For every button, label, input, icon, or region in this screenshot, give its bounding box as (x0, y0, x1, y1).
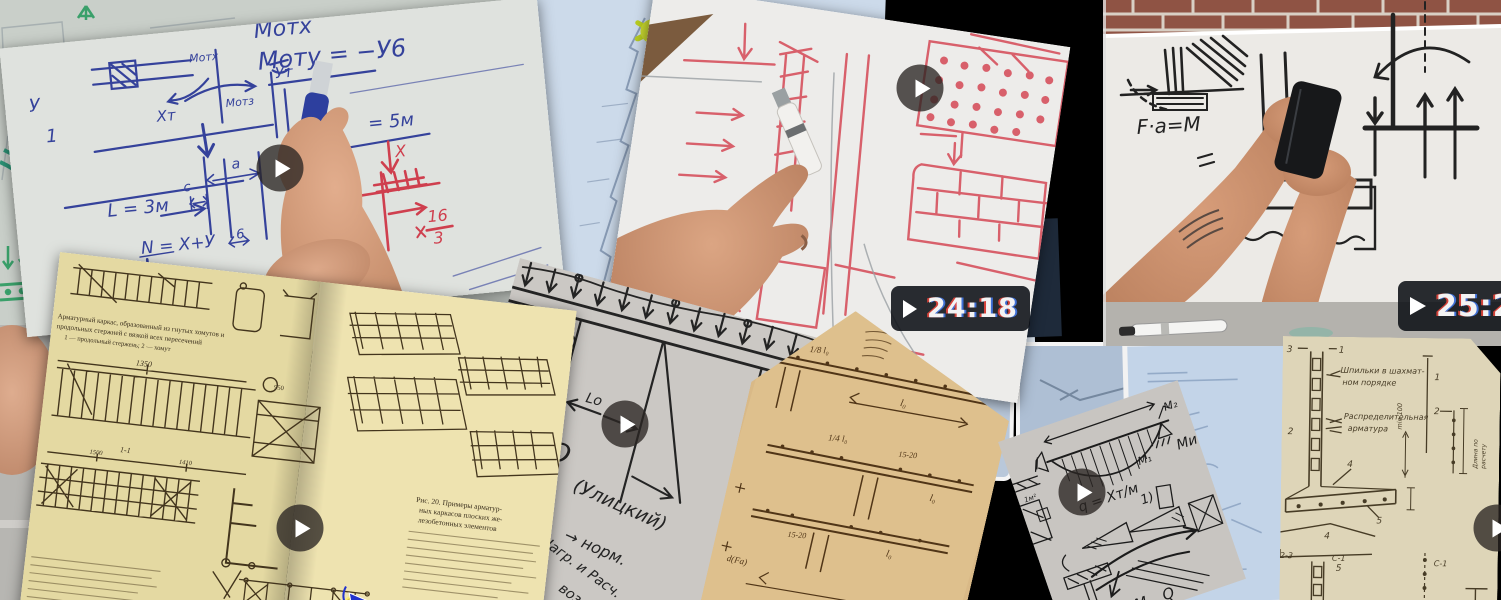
play-button-4[interactable] (602, 401, 649, 448)
duration-badge-2: 25:23 (1398, 281, 1501, 331)
num-4b: 4 (1324, 532, 1330, 542)
fraction-numerator: 16 (427, 205, 449, 226)
dim-1500: 1500 (89, 449, 103, 458)
label-a: a (231, 156, 241, 173)
num-2b: 2 (1434, 407, 1440, 417)
label-xt: Хт (155, 106, 178, 126)
num-5b: 5 (1336, 564, 1342, 574)
num-1b: 1 (1434, 373, 1440, 383)
note-pins-1: Шпильки в шахмат- (1340, 366, 1424, 376)
play-icon (275, 159, 290, 177)
dim-1410: 1410 (179, 459, 193, 468)
label-2-3: 2-3 (1280, 551, 1293, 560)
play-icon (1077, 483, 1092, 501)
label-1: 1 (45, 125, 58, 147)
video-collage: Мотх Моту = −У6 Ут Хт Мотз Мотх = 5м L =… (0, 0, 1501, 600)
label-length-1: Длина по (1472, 439, 1479, 470)
dim-1350: 1350 (135, 358, 152, 369)
dim-eighth-lo: 1/8 l₀ (809, 344, 829, 356)
label-c1b: С-1 (1434, 559, 1448, 568)
label-min100: min 100 (1396, 403, 1404, 430)
formula-fam: F·a=M (1136, 112, 1201, 139)
num-3: 3 (1287, 345, 1293, 355)
label-motz: Мотз (225, 94, 255, 110)
label-6: 6 (236, 227, 246, 243)
label-length-2: расчету (1480, 443, 1487, 470)
play-button-3[interactable] (277, 505, 324, 552)
dim-1520b: 15-20 (787, 530, 806, 541)
note-pins-2: ном порядке (1342, 378, 1396, 388)
dim-quarter-lo2: 1/4 l₀ (828, 432, 848, 444)
duration-text-2: 25:23 (1436, 289, 1501, 324)
play-icon (915, 79, 930, 97)
note-distrib-1: Распределительная (1344, 412, 1429, 422)
video-thumb-beige-drawing[interactable]: 3 1 Шпильки в шахмат- ном порядке Распре… (1279, 336, 1501, 600)
play-icon (295, 519, 310, 537)
dim-1520a: 15-20 (898, 450, 917, 461)
label-c1a: С-1 (1332, 554, 1346, 563)
section-1-1: 1-1 (120, 445, 132, 455)
duration-text-1: 24:18 (927, 293, 1018, 324)
num-5a: 5 (1376, 516, 1382, 526)
play-button-1[interactable] (257, 145, 304, 192)
label-c: c (183, 180, 192, 196)
dim-950: 950 (274, 384, 284, 392)
play-icon (620, 415, 635, 433)
fraction-denominator: 3 (433, 228, 445, 248)
num-4a: 4 (1347, 460, 1353, 470)
duration-badge-1: 24:18 (891, 286, 1030, 331)
num-1a: 1 (1339, 346, 1345, 356)
num-2a: 2 (1288, 427, 1294, 437)
play-icon (903, 300, 917, 318)
play-button-5[interactable] (1059, 469, 1106, 516)
play-button-2[interactable] (897, 65, 944, 112)
note-distrib-2: арматура (1348, 424, 1389, 434)
play-icon (1410, 297, 1426, 315)
play-icon (1492, 519, 1501, 537)
label-5m: = 5м (367, 109, 415, 134)
